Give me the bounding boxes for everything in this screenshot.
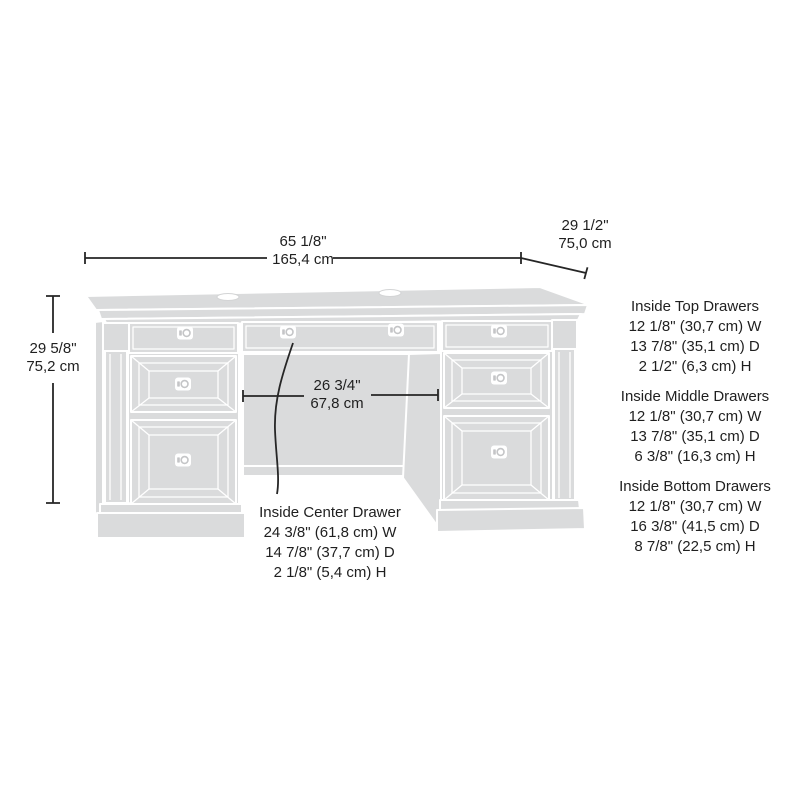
desk-dimension-diagram: 65 1/8" 165,4 cm 29 1/2" 75,0 cm 29 5/8"… <box>0 0 800 800</box>
kneehole-cm: 67,8 cm <box>287 395 387 413</box>
depth-inches: 29 1/2" <box>535 217 635 235</box>
spec-width: 12 1/8" (30,7 cm) W <box>610 317 780 337</box>
grommet-hole-icon <box>217 294 239 301</box>
spec-title: Inside Middle Drawers <box>610 387 780 407</box>
inside-top-drawers-spec: Inside Top Drawers 12 1/8" (30,7 cm) W 1… <box>610 297 780 377</box>
kneehole-dimension-label: 26 3/4" 67,8 cm <box>287 377 387 413</box>
height-inches: 29 5/8" <box>10 340 96 358</box>
left-pilaster-capital <box>103 323 129 351</box>
spec-depth: 13 7/8" (35,1 cm) D <box>610 337 780 357</box>
right-pilaster-shaft <box>554 349 575 501</box>
depth-dimension-line <box>521 258 588 279</box>
inside-drawer-specs: Inside Top Drawers 12 1/8" (30,7 cm) W 1… <box>610 297 780 567</box>
spec-title: Inside Bottom Drawers <box>610 477 780 497</box>
left-base-molding-step <box>100 504 242 513</box>
width-dimension-label: 65 1/8" 165,4 cm <box>243 233 363 269</box>
height-dimension-line <box>46 296 60 503</box>
center-drawer-width: 24 3/8" (61,8 cm) W <box>245 523 415 543</box>
grommet-hole-icon <box>379 290 401 297</box>
right-pilaster-capital <box>552 320 577 349</box>
height-dimension-label: 29 5/8" 75,2 cm <box>10 340 96 376</box>
right-base-molding <box>437 508 585 532</box>
width-cm: 165,4 cm <box>243 251 363 269</box>
spec-height: 8 7/8" (22,5 cm) H <box>610 537 780 557</box>
width-inches: 65 1/8" <box>243 233 363 251</box>
kneehole-bottom-rail <box>243 466 409 476</box>
depth-cm: 75,0 cm <box>535 235 635 253</box>
spec-depth: 16 3/8" (41,5 cm) D <box>610 517 780 537</box>
spec-title: Inside Top Drawers <box>610 297 780 317</box>
center-drawer-title: Inside Center Drawer <box>245 503 415 523</box>
center-drawer-depth: 14 7/8" (37,7 cm) D <box>245 543 415 563</box>
inside-middle-drawers-spec: Inside Middle Drawers 12 1/8" (30,7 cm) … <box>610 387 780 467</box>
spec-width: 12 1/8" (30,7 cm) W <box>610 497 780 517</box>
spec-depth: 13 7/8" (35,1 cm) D <box>610 427 780 447</box>
left-base-molding <box>97 513 245 538</box>
center-drawer-spec: Inside Center Drawer 24 3/8" (61,8 cm) W… <box>245 503 415 583</box>
kneehole-inches: 26 3/4" <box>287 377 387 395</box>
spec-width: 12 1/8" (30,7 cm) W <box>610 407 780 427</box>
spec-height: 2 1/2" (6,3 cm) H <box>610 357 780 377</box>
left-side-panel <box>95 321 103 532</box>
spec-height: 6 3/8" (16,3 cm) H <box>610 447 780 467</box>
height-cm: 75,2 cm <box>10 358 96 376</box>
inside-bottom-drawers-spec: Inside Bottom Drawers 12 1/8" (30,7 cm) … <box>610 477 780 557</box>
depth-dimension-label: 29 1/2" 75,0 cm <box>535 217 635 253</box>
center-drawer-height: 2 1/8" (5,4 cm) H <box>245 563 415 583</box>
left-pilaster-shaft <box>105 351 127 503</box>
